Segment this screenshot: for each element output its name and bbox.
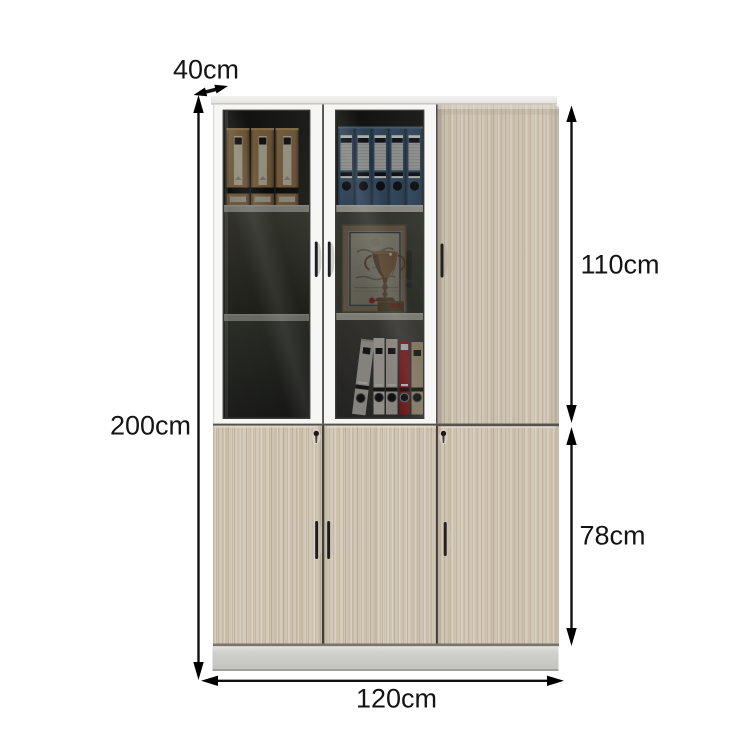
svg-text:200cm: 200cm	[110, 411, 191, 441]
svg-text:40cm: 40cm	[173, 55, 239, 85]
svg-text:78cm: 78cm	[579, 521, 645, 551]
svg-text:110cm: 110cm	[580, 250, 659, 280]
svg-text:120cm: 120cm	[356, 684, 437, 714]
